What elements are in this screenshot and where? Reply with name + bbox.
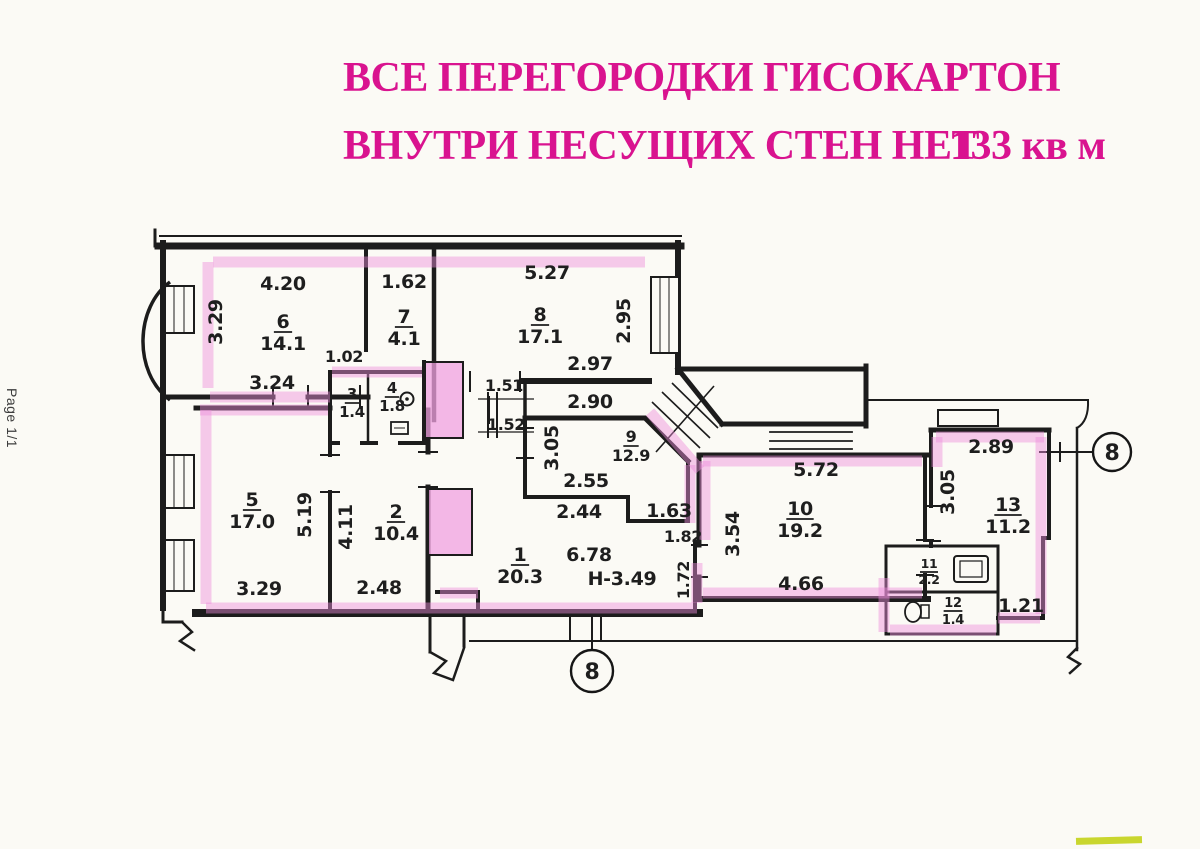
room-area: 1.4 [339, 403, 365, 421]
dimension-label: 1.02 [325, 347, 363, 366]
dimension-label: 3.05 [937, 469, 959, 515]
dimension-label: 3.05 [541, 425, 563, 471]
washbasin-icon [954, 556, 988, 582]
room-number: 2 [390, 501, 403, 523]
room-number: 4 [387, 379, 397, 397]
dimension-label: 5.19 [294, 492, 316, 538]
dimension-label: 2.95 [613, 298, 635, 344]
room-number: 9 [626, 427, 637, 446]
toilet-icon [905, 602, 921, 622]
room-number: 13 [995, 494, 1021, 516]
dimension-label: 3.54 [722, 511, 744, 557]
dimension-label: 1.82 [664, 527, 702, 546]
axis-marker-label: 8 [584, 660, 599, 685]
room-area: 17.0 [229, 511, 275, 533]
floor-plan: 4.201.625.271.022.973.242.901.511.522.55… [0, 0, 1200, 849]
room-area: 20.3 [497, 566, 543, 588]
dimension-label: 2.89 [968, 436, 1014, 458]
room-number: 3 [347, 385, 357, 403]
dimension-label: 1.51 [485, 376, 523, 395]
dimension-label: 2.97 [567, 353, 613, 375]
room-number: 1 [514, 544, 527, 566]
dimension-label: Н-3.49 [588, 568, 657, 590]
dimension-label: 5.72 [793, 459, 839, 481]
room-number: 11 [921, 556, 938, 571]
dimension-label: 4.11 [335, 504, 357, 550]
dimension-label: 2.44 [556, 501, 602, 523]
dimension-label: 6.78 [566, 544, 612, 566]
room-area: 12.9 [612, 446, 650, 465]
dimension-label: 2.48 [356, 577, 402, 599]
dimension-label: 3.29 [236, 578, 282, 600]
dimension-label: 1.72 [674, 561, 693, 599]
axis-marker-label: 8 [1104, 441, 1119, 466]
room-area: 11.2 [985, 516, 1031, 538]
dimension-label: 2.55 [563, 470, 609, 492]
dimension-label: 4.66 [778, 573, 824, 595]
dimension-label: 4.20 [260, 273, 306, 295]
room-number: 6 [277, 311, 290, 333]
dimension-label: 1.52 [487, 415, 525, 434]
dimension-label: 2.90 [567, 391, 613, 413]
room-area: 17.1 [517, 326, 563, 348]
vent-shaft [428, 489, 472, 555]
dimension-label: 1.21 [998, 595, 1044, 617]
dimension-label: 3.29 [205, 299, 227, 345]
room-area: 1.8 [379, 397, 405, 415]
room-area: 4.1 [388, 328, 421, 350]
vent-shaft [425, 362, 463, 438]
room-number: 8 [534, 304, 547, 326]
room-number: 10 [787, 498, 813, 520]
room-area: 2.2 [918, 572, 939, 587]
dimension-label: 3.24 [249, 372, 295, 394]
scan-page: ВСЕ ПЕРЕГОРОДКИ ГИСОКАРТОН ВНУТРИ НЕСУЩИ… [0, 0, 1200, 849]
room-area: 14.1 [260, 333, 306, 355]
room-area: 19.2 [777, 520, 823, 542]
room-number: 5 [246, 489, 259, 511]
room-number: 7 [398, 306, 411, 328]
room-area: 10.4 [373, 523, 419, 545]
dimension-label: 5.27 [524, 262, 570, 284]
room-number: 12 [944, 596, 962, 611]
dimension-label: 1.62 [381, 271, 427, 293]
room-area: 1.4 [942, 613, 964, 628]
dimension-label: 1.63 [646, 500, 692, 522]
